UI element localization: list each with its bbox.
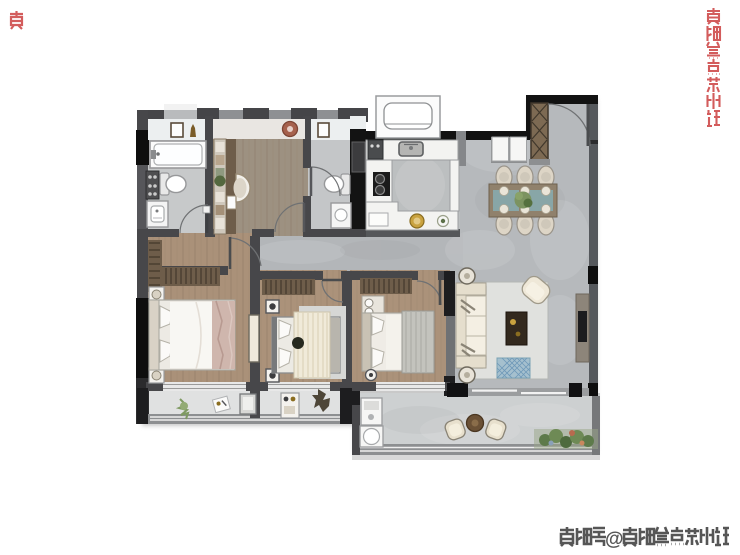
svg-text:@: @	[605, 529, 624, 550]
